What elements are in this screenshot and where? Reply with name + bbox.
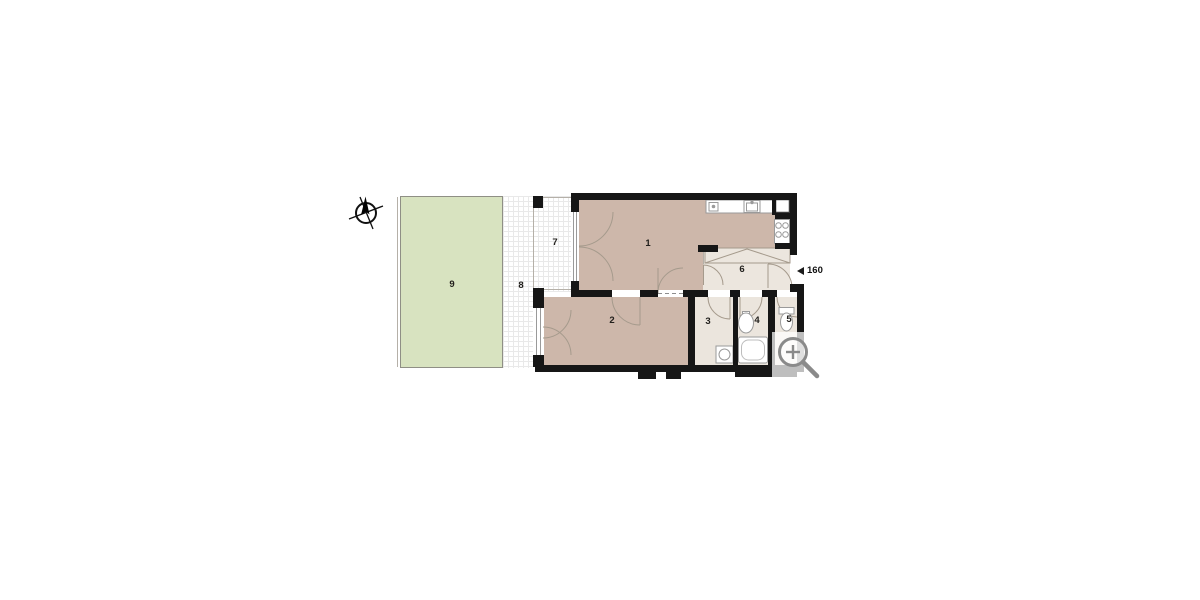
- room-label-8: 8: [514, 280, 528, 291]
- room-3-utility: [695, 297, 733, 365]
- room-label-7: 7: [548, 237, 562, 248]
- entrance-height-value: 160: [807, 265, 823, 277]
- room-label-3: 3: [701, 316, 715, 327]
- room-4-bathroom: [738, 297, 768, 365]
- room-label-6: 6: [735, 264, 749, 275]
- compass-north-icon: [347, 194, 385, 232]
- room-2-bedroom: [543, 297, 688, 365]
- zoom-in-button[interactable]: [770, 330, 828, 382]
- room-label-2: 2: [605, 315, 619, 326]
- entrance-height-marker: 160: [797, 265, 823, 277]
- left-triangle-icon: [797, 267, 804, 275]
- room-label-9: 9: [445, 279, 459, 290]
- room-label-5: 5: [782, 314, 796, 325]
- floorplan-canvas[interactable]: 1 2 3 4 5 6 7 8 9 160: [0, 0, 1200, 600]
- room-label-4: 4: [750, 315, 764, 326]
- room-label-1: 1: [641, 238, 655, 249]
